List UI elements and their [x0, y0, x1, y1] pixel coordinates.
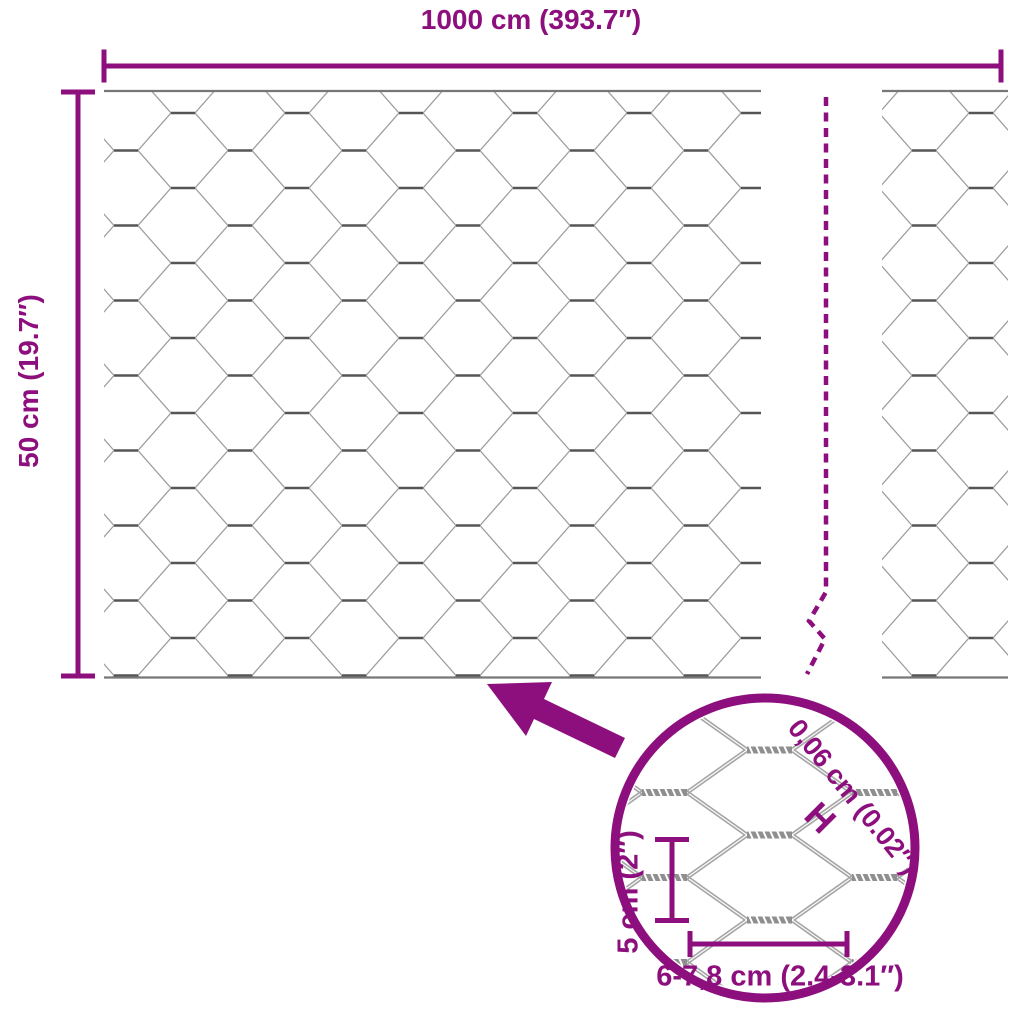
diagram-canvas — [0, 0, 1024, 1024]
product-dimension-diagram: 1000 cm (393.7″) 50 cm (19.7″) 0,06 cm (… — [0, 0, 1024, 1024]
cell-width-label: 6-7,8 cm (2.4-3.1″) — [656, 963, 904, 992]
width-dimension-line — [104, 50, 1001, 83]
roll-height-label: 50 cm (19.7″) — [15, 294, 43, 468]
roll-width-label: 1000 cm (393.7″) — [421, 6, 641, 34]
mesh-panel-main — [104, 91, 761, 678]
cell-height-label: 5 cm (2″) — [615, 830, 644, 954]
detail-arrow-icon — [487, 682, 625, 758]
break-line — [807, 97, 826, 674]
height-dimension-line — [61, 92, 95, 676]
mesh-panel-right — [882, 91, 1008, 678]
